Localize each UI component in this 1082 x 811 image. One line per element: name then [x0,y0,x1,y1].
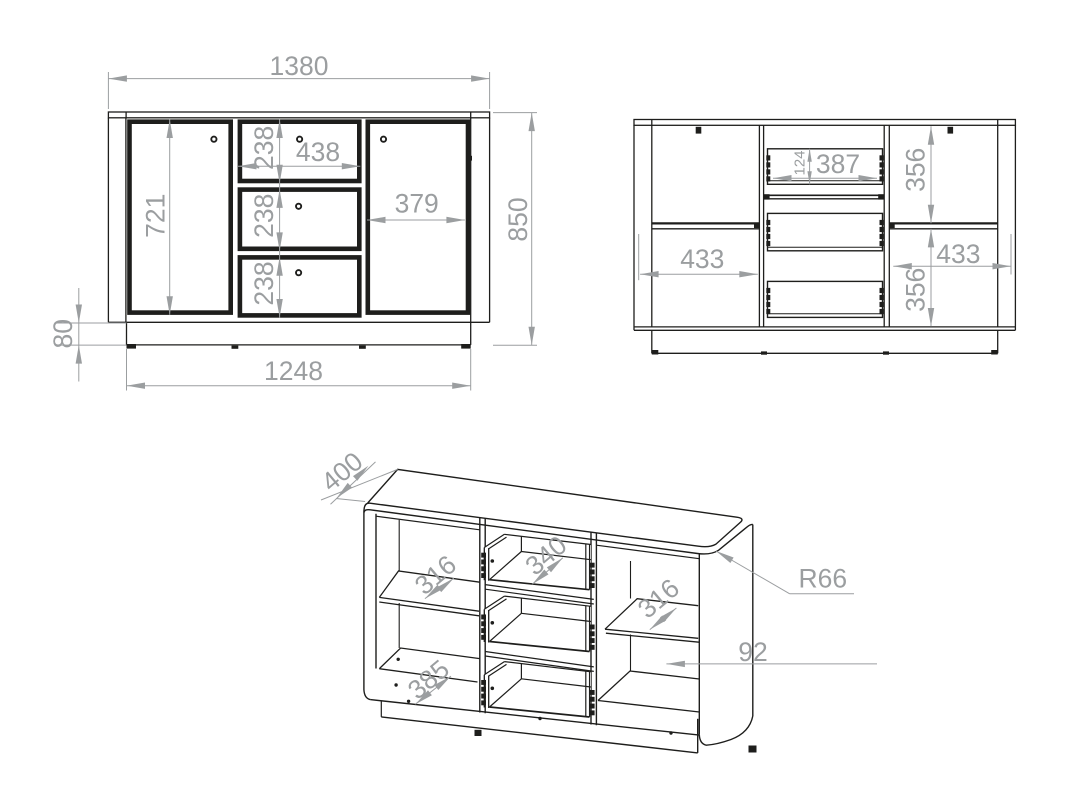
svg-text:92: 92 [738,637,767,667]
svg-text:438: 438 [296,137,340,167]
svg-text:721: 721 [141,194,171,238]
svg-text:80: 80 [48,319,78,348]
svg-text:379: 379 [395,189,439,219]
svg-text:433: 433 [680,244,724,274]
svg-text:R66: R66 [798,564,847,594]
svg-text:238: 238 [249,261,279,305]
svg-text:356: 356 [901,148,931,192]
svg-text:124: 124 [792,150,809,175]
svg-text:387: 387 [816,149,860,179]
svg-text:238: 238 [249,126,279,170]
svg-text:1248: 1248 [264,356,323,386]
svg-text:1380: 1380 [270,51,329,81]
svg-text:356: 356 [901,268,931,312]
svg-text:238: 238 [249,194,279,238]
svg-text:433: 433 [936,239,980,269]
svg-text:850: 850 [503,197,533,241]
